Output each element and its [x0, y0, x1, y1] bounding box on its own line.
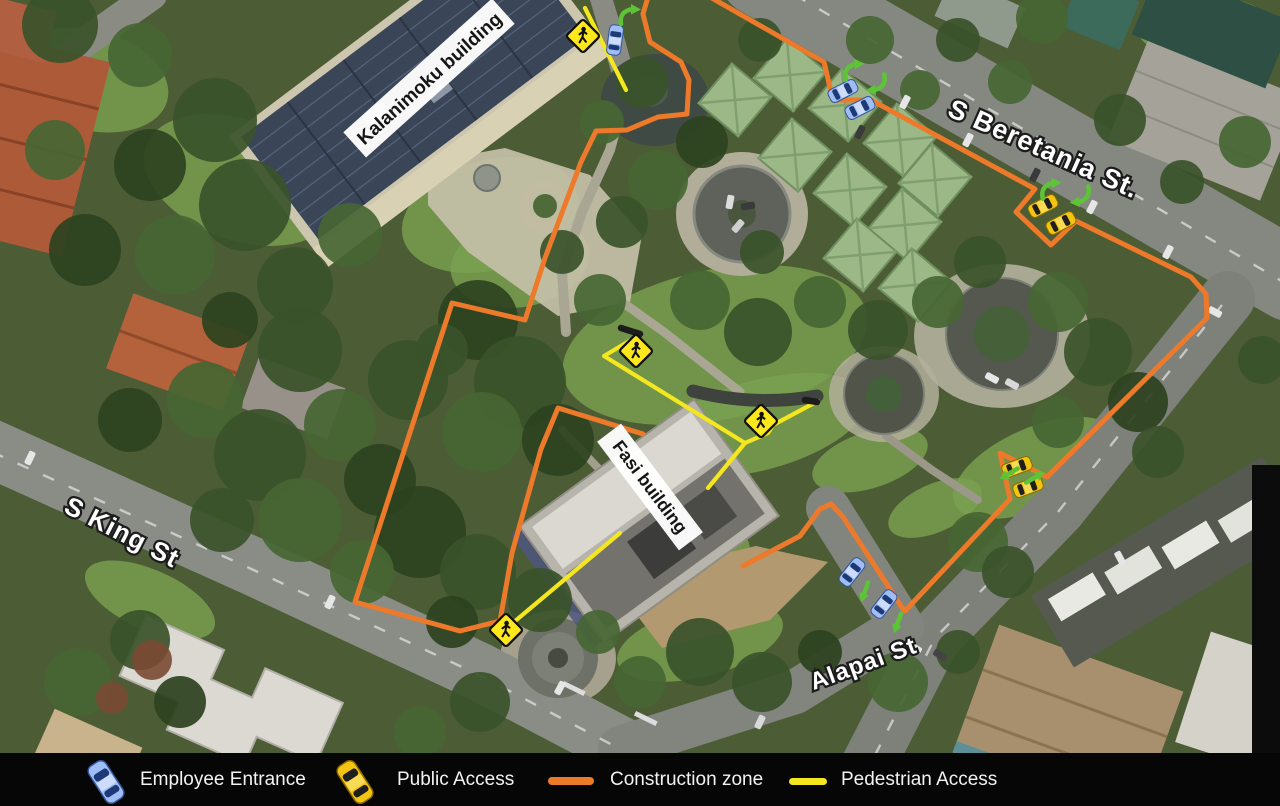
path-end-cap — [805, 400, 817, 402]
legend-bar: Employee Entrance Public Access Construc… — [0, 753, 1280, 806]
annotated-aerial-map-screen: S Beretania St. S King St Alapai St Kala… — [0, 0, 1280, 806]
legend-label-pedestrian-access: Pedestrian Access — [841, 753, 997, 806]
legend-label-employee-entrance: Employee Entrance — [140, 753, 306, 806]
legend-label-public-access: Public Access — [397, 753, 514, 806]
employee-entrance-car-icon — [82, 755, 130, 806]
construction-zone-line-swatch — [548, 777, 594, 785]
pedestrian-access-line-swatch — [789, 778, 827, 785]
legend-label-construction-zone: Construction zone — [610, 753, 763, 806]
public-access-car-icon — [331, 755, 379, 806]
satellite-map: S Beretania St. S King St Alapai St Kala… — [0, 0, 1280, 753]
shadow-edge — [1252, 465, 1280, 753]
